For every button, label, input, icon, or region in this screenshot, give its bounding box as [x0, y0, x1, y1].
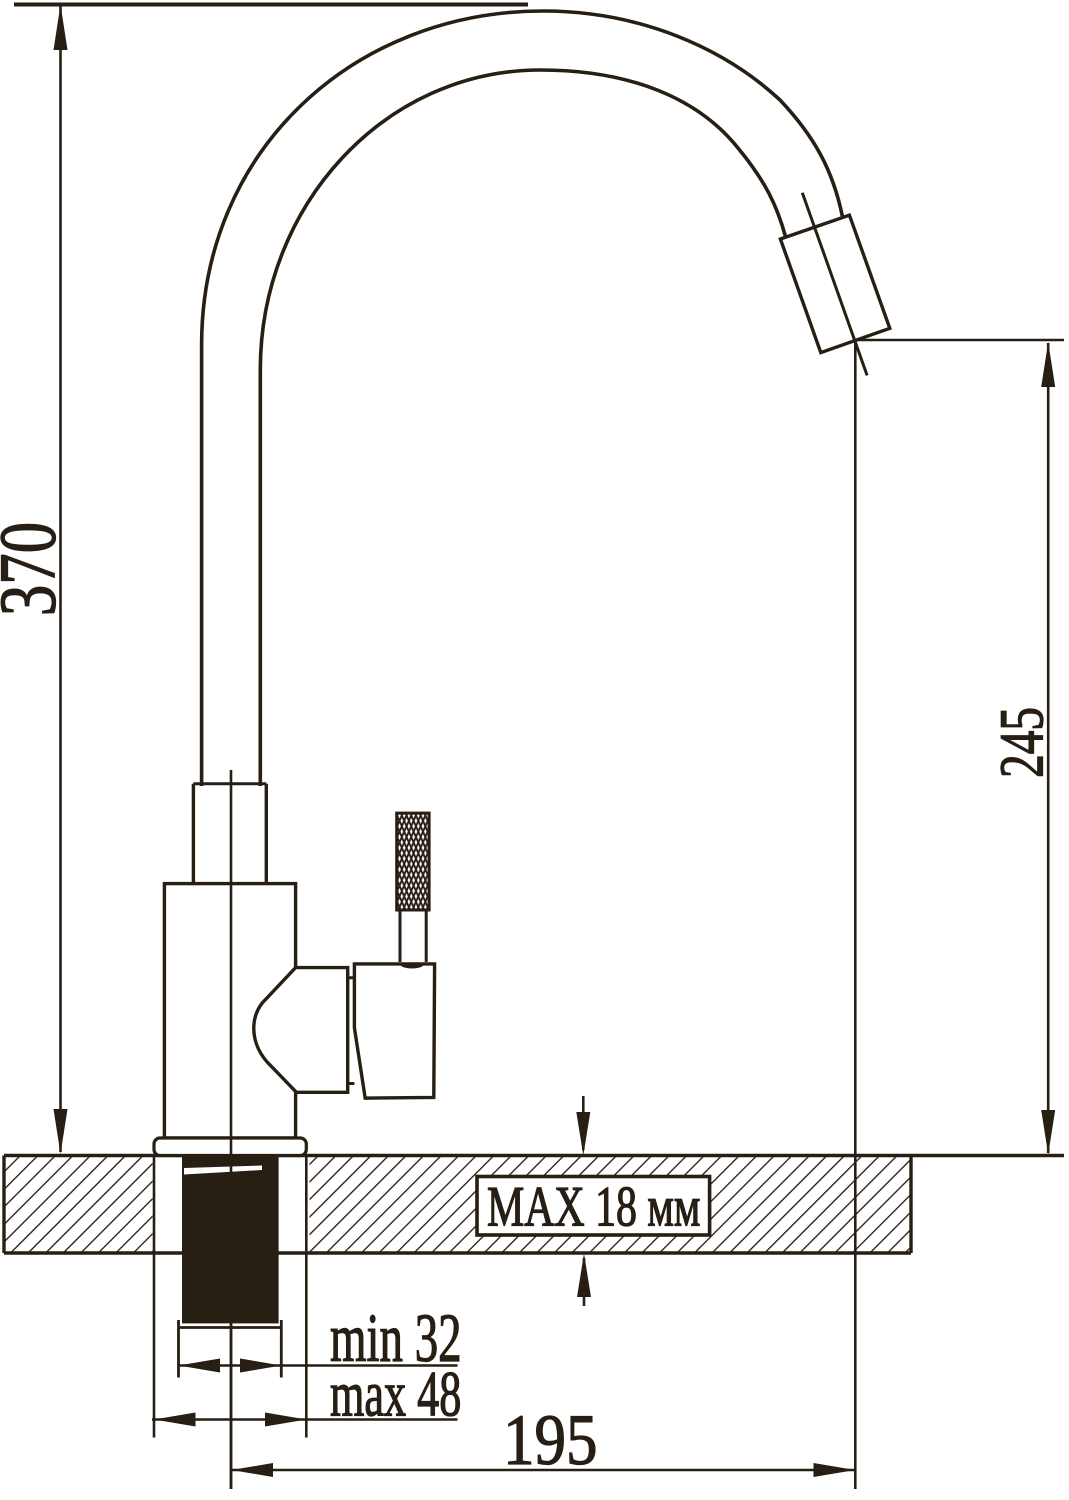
svg-text:245: 245	[987, 707, 1057, 778]
svg-text:MAX 18 мм: MAX 18 мм	[487, 1174, 700, 1238]
svg-text:370: 370	[0, 522, 72, 616]
svg-text:max 48: max 48	[330, 1358, 461, 1431]
svg-text:195: 195	[503, 1400, 597, 1480]
